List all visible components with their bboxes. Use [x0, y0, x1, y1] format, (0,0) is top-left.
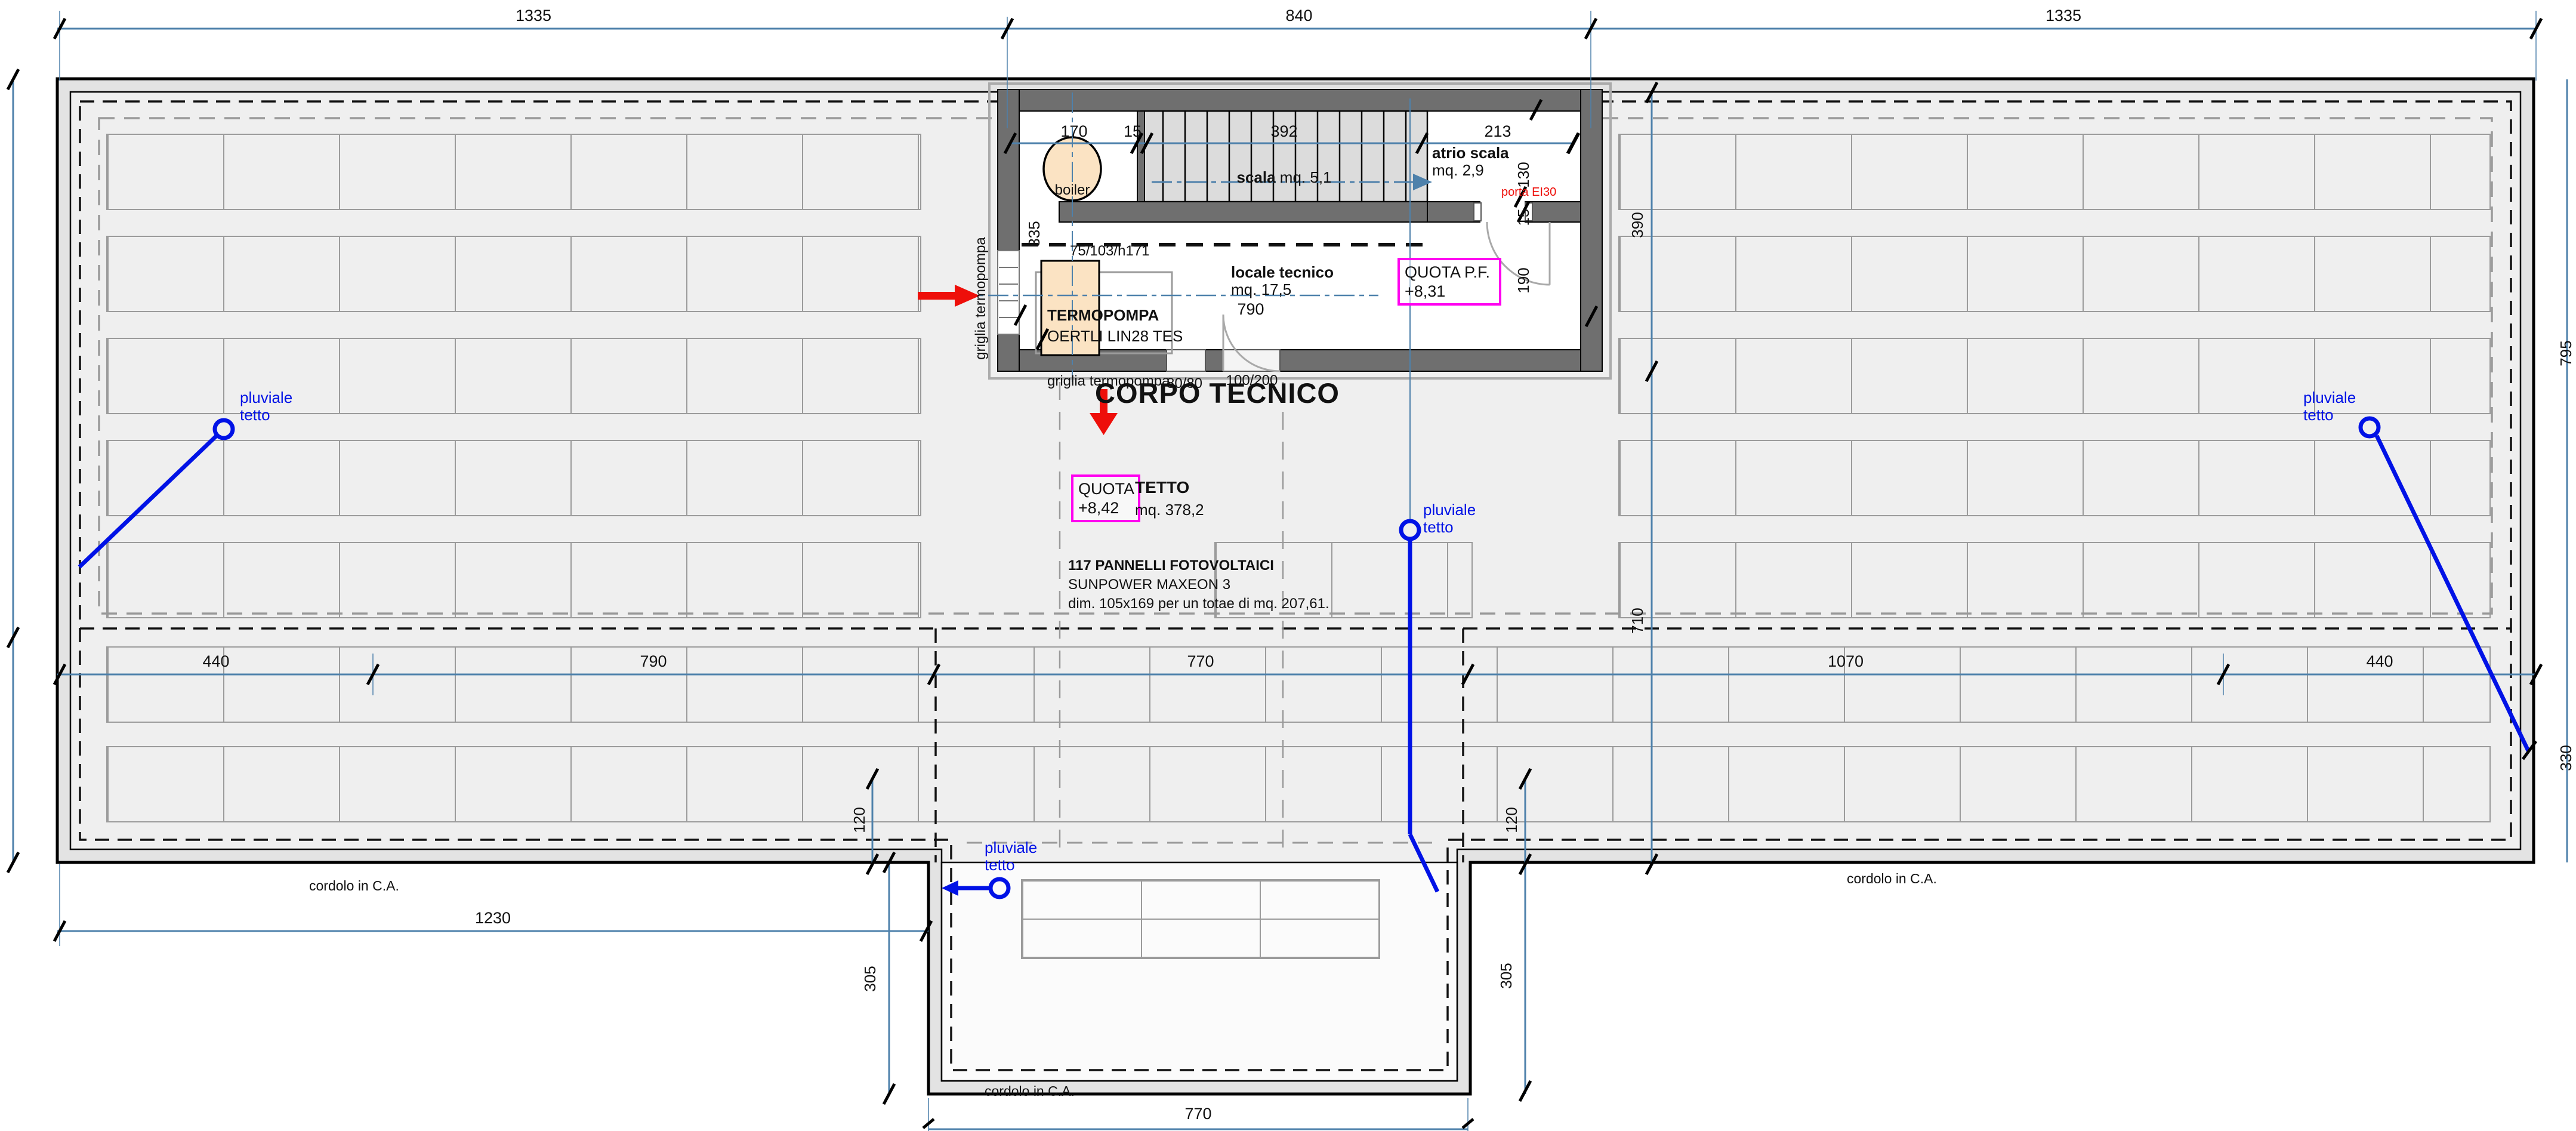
dim-795-right-edge: 795: [2557, 318, 2575, 389]
termopompa-size-label: 75/103/h171: [1070, 242, 1149, 260]
stair-bottom-wall: [1059, 202, 1427, 222]
dim-390: 390: [1628, 189, 1646, 261]
dim-mid-440-right: 440: [2366, 653, 2393, 670]
pluviale-word: pluviale: [2303, 389, 2356, 406]
dim-corpo-15: 15: [1124, 123, 1142, 140]
corpo-wall-bottom-2: [1205, 350, 1223, 371]
cordolo-label-right: cordolo in C.A.: [1847, 870, 1937, 887]
dim-mid-770: 770: [1187, 653, 1214, 670]
dim-corpo-190: 190: [1514, 245, 1532, 316]
quota-line1: QUOTA: [1078, 479, 1133, 498]
dim-top-1335-right: 1335: [2046, 7, 2081, 24]
scala-area: mq. 5,1: [1280, 168, 1332, 186]
tetto-area: mq. 378,2: [1135, 501, 1204, 519]
dim-corpo-170: 170: [1060, 123, 1087, 140]
quota-pf-line2: +8,31: [1405, 282, 1494, 301]
dim-mid-790: 790: [640, 653, 667, 670]
griglia-label-horizontal: griglia termopompa: [1047, 372, 1170, 390]
atrio-area: mq. 2,9: [1432, 162, 1509, 179]
corpo-wall-left-lower: [998, 334, 1019, 371]
dim-770-bottom: 770: [1184, 1105, 1211, 1123]
tetto-word: tetto: [1423, 519, 1476, 536]
pluviale-label-center: pluviale tetto: [1423, 501, 1476, 536]
tetto-word: tetto: [2303, 406, 2356, 424]
corpo-wall-left-upper: [998, 90, 1019, 251]
pannelli-line1: 117 PANNELLI FOTOVOLTAICI: [1068, 556, 1329, 575]
dim-305-right: 305: [1497, 940, 1515, 1012]
pluviale-label-right: pluviale tetto: [2303, 389, 2356, 424]
pannelli-line2: SUNPOWER MAXEON 3: [1068, 575, 1329, 594]
dim-corpo-335: 335: [1025, 198, 1043, 270]
internal-wall-left: [1427, 202, 1480, 222]
pannelli-line3: dim. 105x169 per un totae di mq. 207,61.: [1068, 594, 1329, 614]
dim-mid-440-left: 440: [202, 653, 229, 670]
dim-top-1335-left: 1335: [516, 7, 551, 24]
door-jamb: [1474, 203, 1481, 221]
dim-120-left: 120: [850, 784, 868, 856]
tetto-word: tetto: [985, 856, 1037, 874]
cordolo-label-left: cordolo in C.A.: [309, 877, 399, 895]
quota-tetto-box: QUOTA +8,42: [1071, 474, 1140, 522]
dim-1230: 1230: [475, 910, 511, 927]
dim-710: 710: [1628, 585, 1646, 657]
scala-label: scala mq. 5,1: [1236, 169, 1331, 186]
dim-top-840: 840: [1285, 7, 1312, 24]
dim-corpo-213: 213: [1484, 123, 1511, 140]
cordolo-label-bottom: cordolo in C.A.: [985, 1083, 1075, 1100]
quota-line2: +8,42: [1078, 498, 1133, 517]
atrio-label: atrio scala mq. 2,9: [1432, 144, 1509, 179]
internal-wall-right: [1525, 202, 1581, 222]
roof-plan-drawing: 1335 840 1335 440 790 770 1070 440 1230 …: [0, 0, 2576, 1131]
locale-tecnico-label: locale tecnico mq. 17,5: [1231, 264, 1334, 298]
termopompa-name: TERMOPOMPA: [1047, 307, 1159, 324]
locale-area: mq. 17,5: [1231, 281, 1334, 298]
pluviale-word: pluviale: [1423, 501, 1476, 519]
dim-305-left: 305: [861, 943, 879, 1015]
corpo-wall-right: [1581, 90, 1602, 371]
termopompa-model: OERTLI LIN28 TES: [1047, 328, 1183, 345]
dim-mid-1070: 1070: [1828, 653, 1864, 670]
atrio-name: atrio scala: [1432, 144, 1509, 162]
dim-corpo-392: 392: [1270, 123, 1297, 140]
griglia-label-vertical: griglia termopompa: [973, 209, 991, 388]
corpo-wall-bottom-3: [1280, 350, 1581, 371]
dim-120-right: 120: [1503, 784, 1520, 856]
locale-name: locale tecnico: [1231, 264, 1334, 281]
tetto-word: tetto: [240, 406, 292, 424]
tetto-name: TETTO: [1135, 479, 1189, 496]
pannelli-note: 117 PANNELLI FOTOVOLTAICI SUNPOWER MAXEO…: [1068, 556, 1329, 614]
pluviale-lines: [79, 418, 2528, 897]
pluviale-word: pluviale: [240, 389, 292, 406]
quota-pf-box: QUOTA P.F. +8,31: [1397, 258, 1501, 306]
dim-corpo-790: 790: [1237, 301, 1264, 318]
boiler-label: boiler: [1055, 181, 1090, 199]
dim-330-right-edge: 330: [2557, 722, 2575, 794]
porta-ei30-label: porta EI30: [1501, 184, 1556, 201]
scala-name: scala: [1236, 168, 1275, 186]
pluviale-word: pluviale: [985, 839, 1037, 856]
pluviale-label-left: pluviale tetto: [240, 389, 292, 424]
pluviale-arrowhead: [942, 880, 958, 896]
quota-pf-line1: QUOTA P.F.: [1405, 263, 1494, 282]
opening-100x200: [1223, 350, 1280, 371]
corpo-wall-top: [998, 90, 1602, 111]
pluviale-label-bottom: pluviale tetto: [985, 839, 1037, 874]
